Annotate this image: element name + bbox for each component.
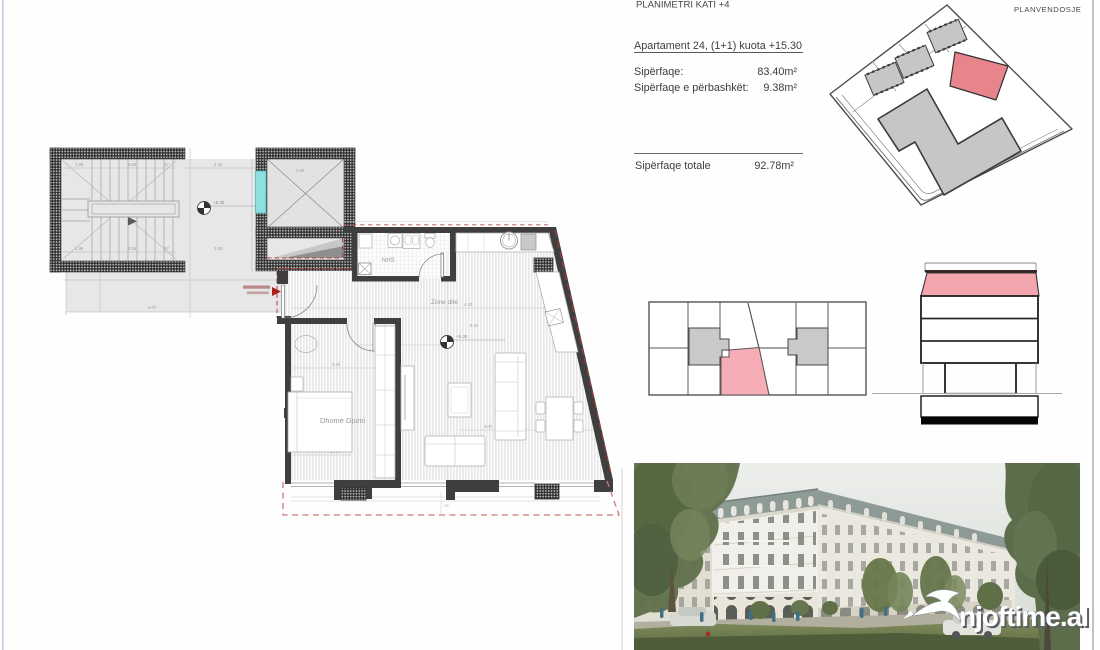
svg-text:2.00: 2.00 xyxy=(296,168,305,173)
svg-text:2.25: 2.25 xyxy=(214,162,223,167)
svg-text:92.78m²: 92.78m² xyxy=(754,160,794,172)
svg-text:Sipërfaqe totale: Sipërfaqe totale xyxy=(635,160,711,172)
svg-text:4.07: 4.07 xyxy=(484,424,493,429)
svg-text:3.06: 3.06 xyxy=(128,246,137,251)
svg-text:Sipërfaqe e përbashkët:: Sipërfaqe e përbashkët: xyxy=(634,82,749,94)
svg-text:1.96: 1.96 xyxy=(75,246,84,251)
svg-text:PLANIMETRI KATI +4: PLANIMETRI KATI +4 xyxy=(636,0,730,11)
svg-text:83.40m²: 83.40m² xyxy=(757,66,797,78)
svg-text:njoftime.al: njoftime.al xyxy=(959,601,1088,632)
svg-text:5.40: 5.40 xyxy=(470,323,479,328)
svg-text:+5.30: +5.30 xyxy=(213,200,225,205)
svg-text:1.96: 1.96 xyxy=(75,162,84,167)
svg-text:.47: .47 xyxy=(163,246,169,251)
svg-text:2.25: 2.25 xyxy=(214,246,223,251)
svg-text:PLANVENDOSJE: PLANVENDOSJE xyxy=(1014,5,1081,14)
svg-text:Apartament 24, (1+1) kuota +15: Apartament 24, (1+1) kuota +15.30 xyxy=(634,40,802,52)
svg-text:3.40: 3.40 xyxy=(332,362,341,367)
svg-text:.75: .75 xyxy=(443,503,449,508)
svg-text:.47: .47 xyxy=(163,162,169,167)
svg-text:+5.30: +5.30 xyxy=(456,334,468,339)
svg-text:NHS: NHS xyxy=(382,258,395,264)
svg-text:6.07: 6.07 xyxy=(148,305,157,310)
svg-text:3.06: 3.06 xyxy=(128,162,137,167)
svg-text:Dhome Gjumi: Dhome Gjumi xyxy=(320,416,366,425)
svg-text:Zone dite: Zone dite xyxy=(431,299,458,306)
svg-text:4.40: 4.40 xyxy=(464,302,473,307)
svg-text:9.38m²: 9.38m² xyxy=(763,82,797,94)
svg-text:Sipërfaqe:: Sipërfaqe: xyxy=(634,66,683,78)
